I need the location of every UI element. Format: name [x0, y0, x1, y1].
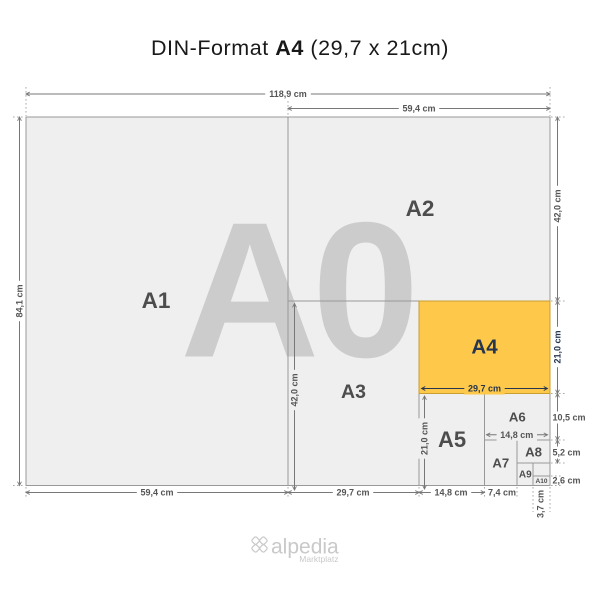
- svg-text:29,7 cm: 29,7 cm: [468, 384, 501, 394]
- svg-text:14,8 cm: 14,8 cm: [500, 430, 533, 440]
- svg-text:5,2 cm: 5,2 cm: [553, 448, 581, 458]
- svg-text:118,9 cm: 118,9 cm: [269, 89, 307, 99]
- svg-text:A10: A10: [536, 478, 548, 485]
- svg-text:42,0 cm: 42,0 cm: [553, 189, 563, 222]
- svg-text:A8: A8: [525, 445, 542, 460]
- svg-text:7,4 cm: 7,4 cm: [488, 488, 516, 498]
- svg-text:A5: A5: [438, 427, 466, 452]
- svg-text:2,6 cm: 2,6 cm: [553, 476, 581, 486]
- svg-text:A9: A9: [519, 470, 532, 481]
- svg-text:84,1 cm: 84,1 cm: [15, 284, 25, 317]
- svg-text:59,4 cm: 59,4 cm: [402, 104, 435, 114]
- svg-text:21,0 cm: 21,0 cm: [553, 330, 563, 363]
- svg-text:A1: A1: [142, 288, 171, 313]
- svg-text:A0: A0: [180, 182, 412, 398]
- svg-text:59,4 cm: 59,4 cm: [140, 488, 173, 498]
- svg-text:21,0 cm: 21,0 cm: [420, 422, 430, 455]
- svg-text:29,7 cm: 29,7 cm: [336, 488, 369, 498]
- svg-text:A3: A3: [341, 381, 366, 403]
- svg-text:A7: A7: [492, 456, 509, 471]
- svg-text:42,0 cm: 42,0 cm: [290, 373, 300, 406]
- svg-text:A4: A4: [471, 336, 498, 359]
- svg-text:3,7 cm: 3,7 cm: [536, 490, 546, 518]
- svg-text:DIN-Format A4 (29,7 x 21cm): DIN-Format A4 (29,7 x 21cm): [151, 36, 449, 60]
- svg-text:14,8 cm: 14,8 cm: [434, 488, 467, 498]
- svg-text:A2: A2: [406, 196, 435, 221]
- svg-text:10,5 cm: 10,5 cm: [553, 413, 586, 423]
- svg-text:A6: A6: [509, 410, 526, 425]
- svg-text:Marktplatz: Marktplatz: [299, 554, 338, 564]
